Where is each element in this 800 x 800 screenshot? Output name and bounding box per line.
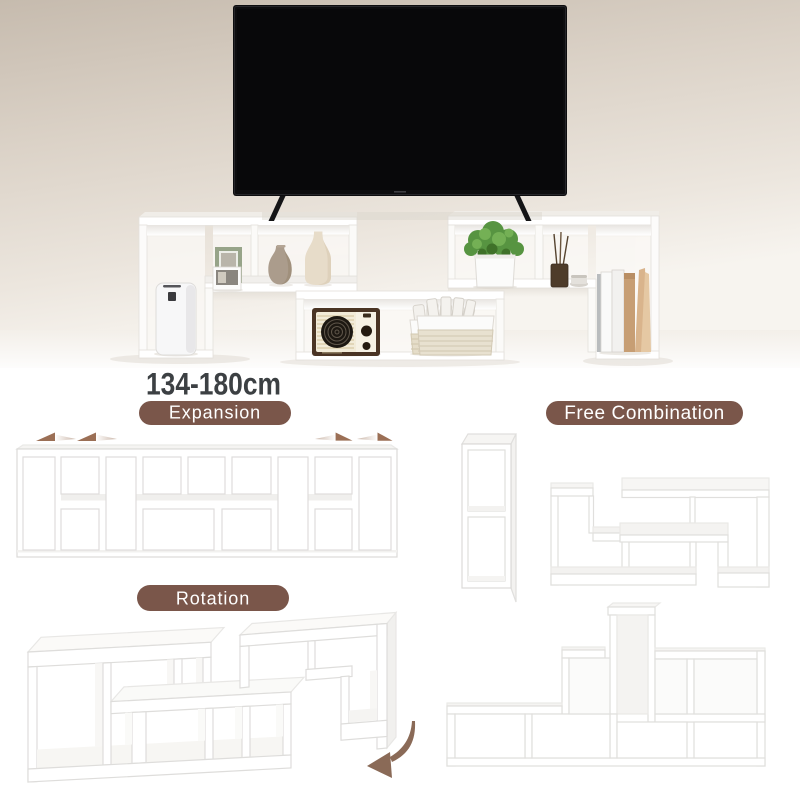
svg-text:Expansion: Expansion bbox=[169, 403, 261, 423]
svg-text:Free Combination: Free Combination bbox=[564, 403, 725, 424]
svg-text:Rotation: Rotation bbox=[176, 589, 250, 609]
svg-text:134-180cm: 134-180cm bbox=[146, 367, 281, 402]
